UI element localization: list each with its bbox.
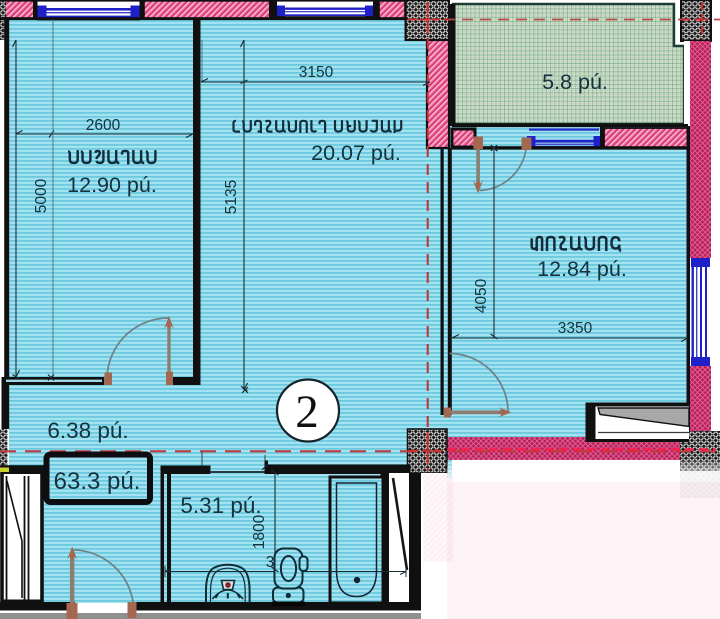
svg-text:1800: 1800 (251, 514, 268, 549)
svg-text:5.8 pú.: 5.8 pú. (542, 70, 608, 94)
svg-text:12.90 pú.: 12.90 pú. (67, 173, 157, 197)
svg-text:3350: 3350 (558, 320, 593, 337)
svg-text:6.38 pú.: 6.38 pú. (47, 418, 128, 443)
svg-text:12.84 pú.: 12.84 pú. (537, 257, 627, 281)
svg-text:5.31 pú.: 5.31 pú. (180, 493, 261, 518)
svg-text:5000: 5000 (33, 178, 50, 213)
svg-text:3150: 3150 (299, 64, 334, 81)
svg-text:5135: 5135 (223, 180, 240, 214)
svg-text:4050: 4050 (473, 278, 490, 313)
svg-text:2600: 2600 (86, 117, 121, 134)
svg-text:20.07 pú.: 20.07 pú. (311, 141, 401, 165)
svg-text:2: 2 (295, 386, 319, 438)
svg-text:63.3 pú.: 63.3 pú. (54, 468, 141, 495)
